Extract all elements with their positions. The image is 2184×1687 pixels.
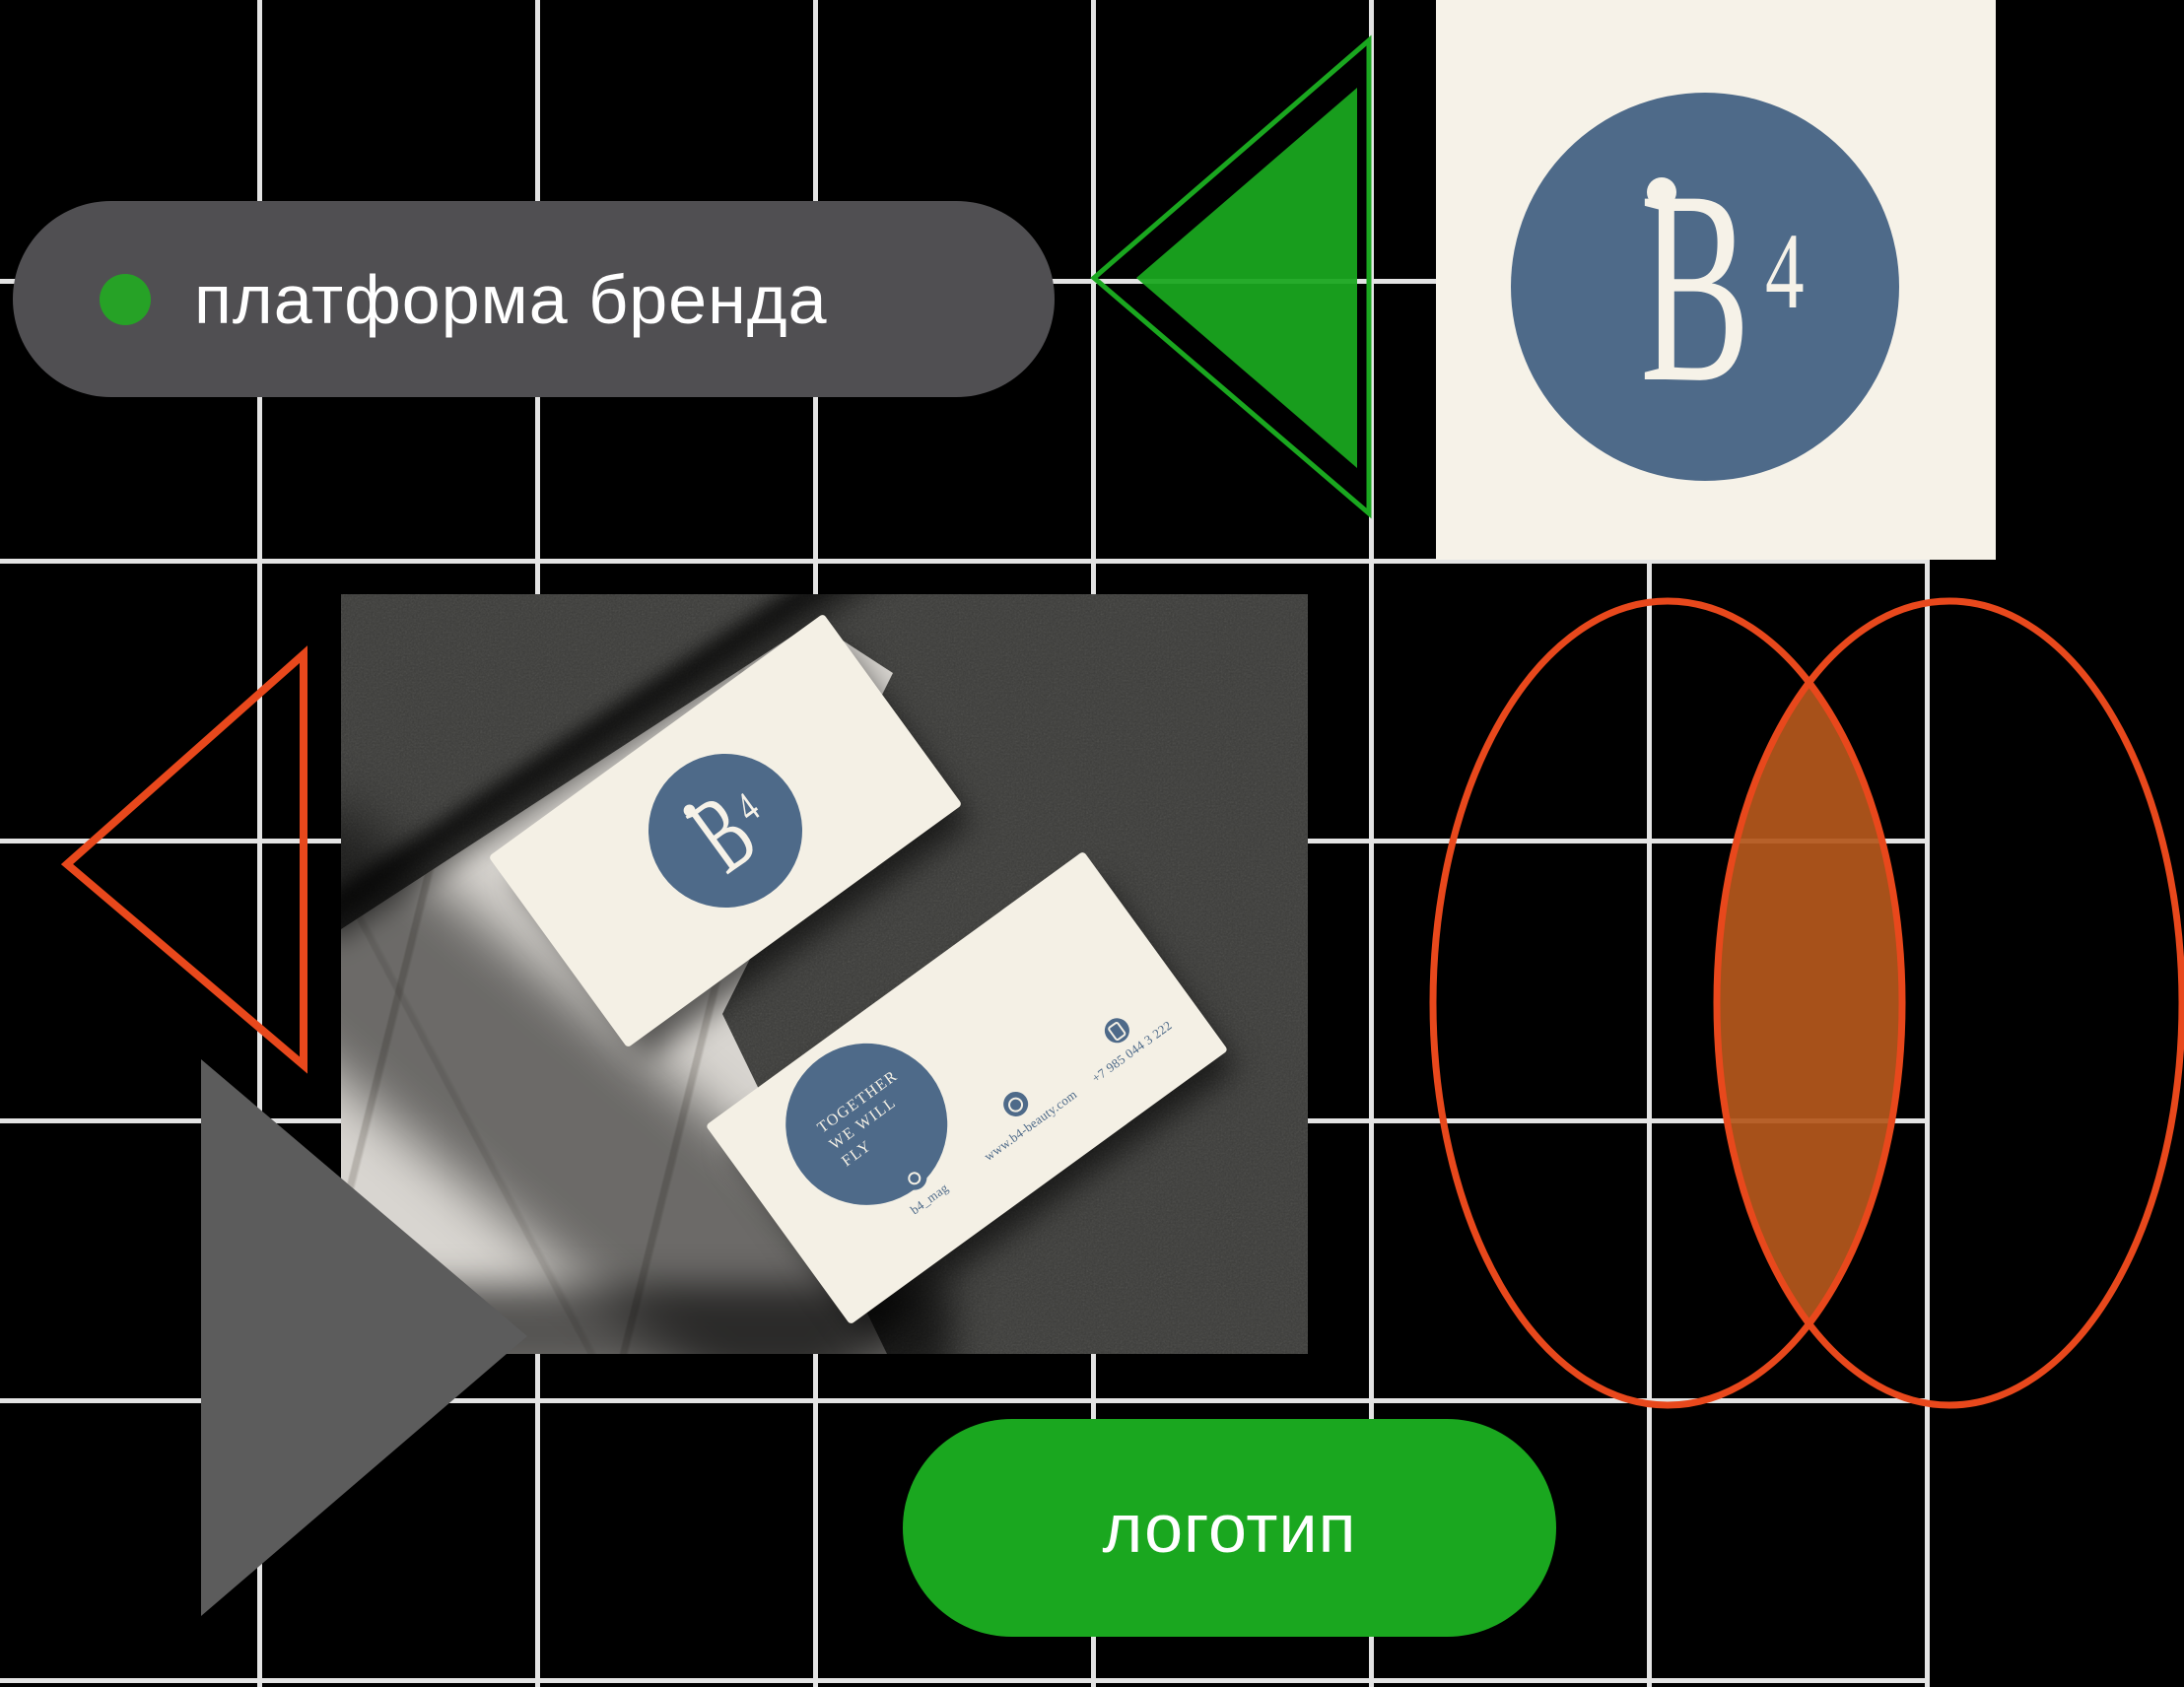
logo-pill: логотип (903, 1419, 1556, 1637)
gray-arrow-icon (201, 1059, 527, 1616)
orange-arrow-outline-icon (67, 654, 304, 1065)
brand-platform-pill: платформа бренда (13, 201, 1055, 397)
logo-pill-label: логотип (1102, 1489, 1356, 1568)
brand-board: B 4 B 4 (0, 0, 2184, 1687)
green-dot-icon (100, 274, 151, 325)
brand-platform-label: платформа бренда (194, 260, 828, 339)
